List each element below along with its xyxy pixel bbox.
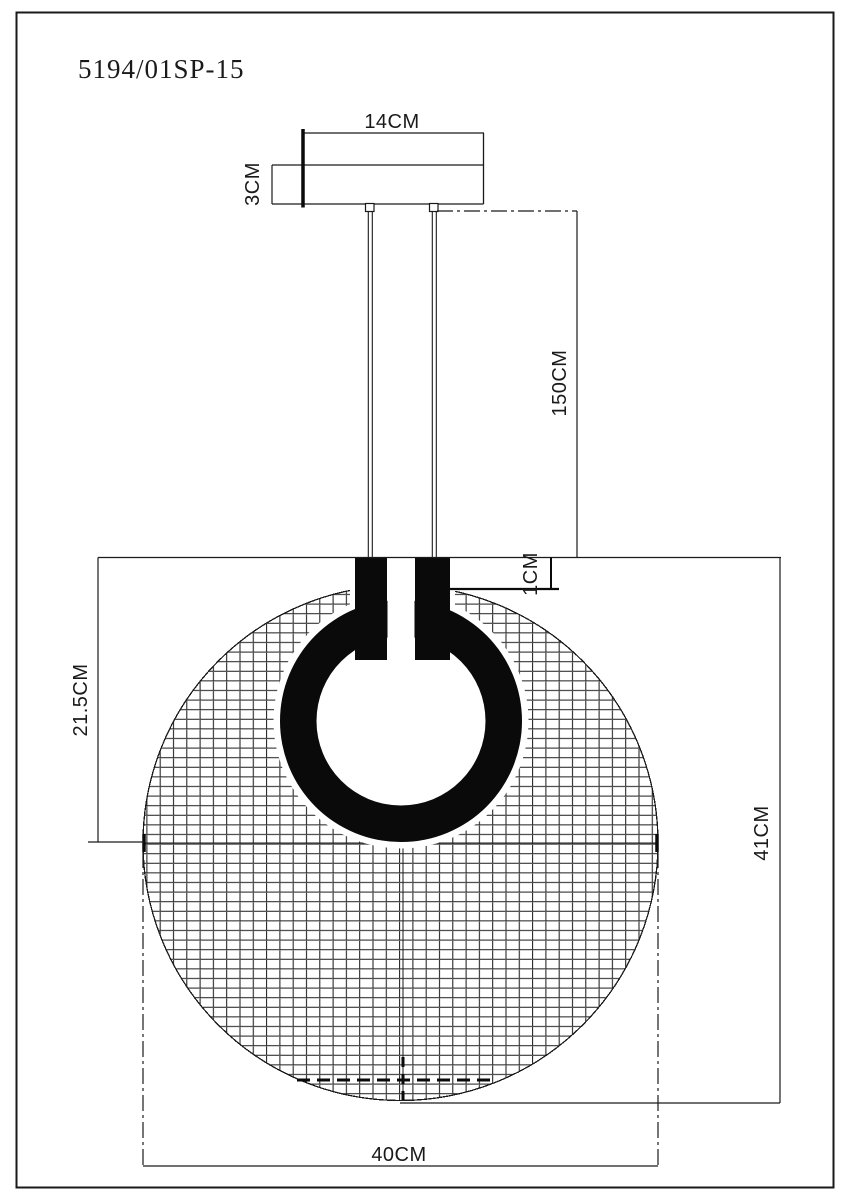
dim-cable-length: 150CM (437, 211, 577, 558)
dim-top-to-center: 21.5CM (70, 558, 144, 843)
right-wire-connector (430, 204, 439, 212)
label-fixture-height: 41CM (751, 805, 773, 860)
label-canopy-height: 3CM (242, 162, 264, 206)
drawing-page: 5194/01SP-15 (0, 0, 848, 1200)
suspension-wires (366, 204, 439, 558)
label-canopy-width: 14CM (364, 111, 419, 133)
technical-drawing-canvas: 5194/01SP-15 (0, 0, 848, 1200)
label-shade-diameter: 40CM (371, 1144, 426, 1166)
ceiling-canopy (272, 129, 484, 208)
label-ring-offset: 1CM (520, 552, 542, 596)
dim-ring-offset: 1CM (450, 552, 559, 596)
ring-top-slot (388, 559, 415, 677)
label-cable-length: 150CM (549, 350, 571, 417)
model-number-label: 5194/01SP-15 (78, 54, 245, 84)
ring-right-tab (415, 557, 450, 660)
label-top-to-center: 21.5CM (70, 663, 92, 736)
left-wire-connector (366, 204, 375, 212)
ring-left-tab (355, 557, 387, 660)
